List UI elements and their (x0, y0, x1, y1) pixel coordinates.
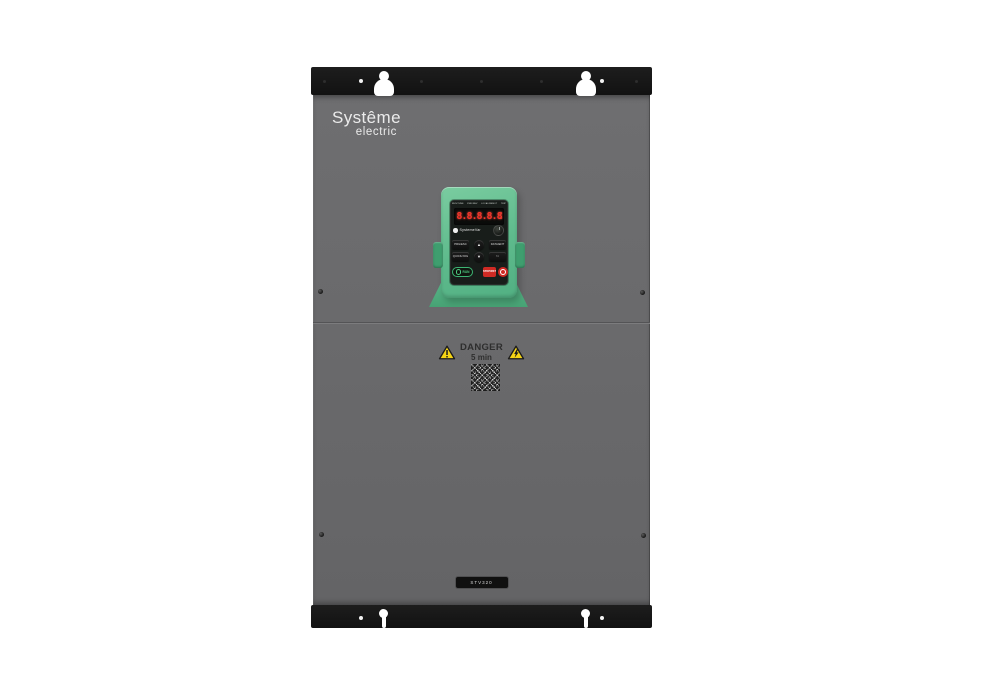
rivet-dot (540, 80, 543, 83)
stop-button (498, 267, 508, 277)
quick-jog-button: QUICK/JOG (452, 252, 469, 261)
brand-name: Systême (332, 109, 398, 127)
down-arrow-button: ▼ (474, 252, 484, 262)
up-arrow-button: ▲ (474, 240, 484, 250)
shift-button: >> (489, 252, 506, 261)
brand-subname: electric (332, 127, 398, 137)
power-icon (456, 269, 462, 275)
enclosure-front-panel: Systême electric RUN/TUNE FWD/REV LOCAL/… (313, 95, 650, 605)
unit-led (500, 212, 502, 214)
status-indicator-labels: RUN/TUNE FWD/REV LOCAL/REMOT TRIP (452, 202, 506, 205)
product-photo: Systême electric RUN/TUNE FWD/REV LOCAL/… (0, 0, 1000, 699)
rivet-dot (323, 80, 326, 83)
potentiometer-knob (493, 225, 504, 236)
warning-triangle-lightning-icon (508, 345, 525, 360)
indicator-fwd-rev: FWD/REV (467, 202, 477, 205)
panel-screw (319, 532, 324, 537)
keypad-bezel: RUN/TUNE FWD/REV LOCAL/REMOT TRIP 8.8.8.… (441, 187, 517, 298)
keypad-brand-text: SystemeVar (460, 228, 481, 232)
vfd-device: Systême electric RUN/TUNE FWD/REV LOCAL/… (311, 67, 652, 628)
panel-screw (640, 290, 645, 295)
stop-icon (500, 269, 506, 275)
indicator-run-tune: RUN/TUNE (452, 202, 464, 205)
data-ent-button: DATA/ENT (489, 240, 506, 249)
rivet-dot (600, 79, 604, 83)
rivet-dot (480, 80, 483, 83)
run-button: RUN (452, 267, 473, 277)
mounting-slot (584, 615, 588, 628)
indicator-local-remot: LOCAL/REMOT (481, 202, 497, 205)
keyhole-slot (576, 79, 596, 96)
indicator-trip: TRIP (501, 202, 506, 205)
panel-screw (641, 533, 646, 538)
rivet-dot (600, 616, 604, 620)
panel-seam (313, 322, 650, 324)
warning-triangle-exclamation-icon (438, 345, 455, 360)
stop-rst-label: STOP/RST (483, 267, 496, 277)
rivet-dot (359, 79, 363, 83)
qr-code (471, 364, 500, 391)
panel-screw (318, 289, 323, 294)
danger-title: DANGER (460, 343, 503, 353)
mounting-bracket-bottom (311, 605, 652, 628)
keypad-clip-right (515, 242, 525, 268)
danger-subtitle: 5 min (460, 353, 503, 362)
rivet-dot (635, 80, 638, 83)
rivet-dot (420, 80, 423, 83)
keyhole-slot (374, 79, 394, 96)
run-button-label: RUN (463, 270, 470, 274)
rivet-dot (359, 616, 363, 620)
keypad-face: RUN/TUNE FWD/REV LOCAL/REMOT TRIP 8.8.8.… (450, 200, 508, 285)
keypad-logo-icon (453, 228, 458, 233)
mounting-bracket-top (311, 67, 652, 95)
keypad-clip-left (433, 242, 443, 268)
display-value: 8.8.8.8.8 (454, 208, 504, 225)
seven-segment-display: 8.8.8.8.8 (454, 208, 504, 225)
mounting-slot (382, 615, 386, 628)
keypad-brand-row: SystemeVar (453, 228, 481, 233)
prg-esc-button: PRG/ESC (452, 240, 469, 249)
brand-logo: Systême electric (332, 109, 398, 137)
danger-text: DANGER 5 min (460, 343, 503, 362)
danger-label: DANGER 5 min (438, 343, 525, 362)
unit-led (500, 217, 502, 219)
model-nameplate: STV320 (456, 577, 508, 588)
